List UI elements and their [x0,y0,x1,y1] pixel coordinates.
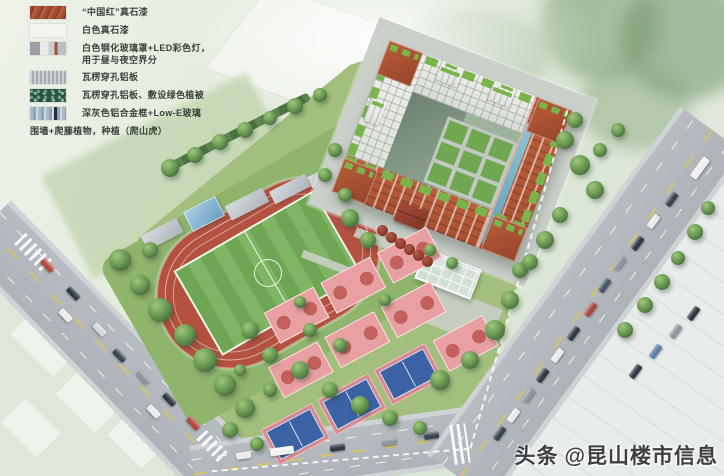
legend-swatch-glass-led-icon [30,42,66,55]
legend-item: 白色钢化玻璃罩+LED彩色灯， 用于昼与夜空界分 [30,42,250,66]
legend-item: 瓦楞穿孔铝板 [30,71,250,84]
tree [328,143,342,157]
tree [461,351,479,369]
tree [671,251,685,265]
tree [338,188,352,202]
legend-label-line2: 用于昼与夜空界分 [82,55,157,65]
tree [318,168,332,182]
tree [351,396,369,414]
tree [262,347,278,363]
tree [687,224,703,240]
legend-label: 围墙+爬藤植物，种植（爬山虎） [30,125,167,137]
tree [485,320,505,340]
tree [637,297,653,313]
legend-label: 瓦楞穿孔铝板、敷设绿色植被 [82,89,204,101]
tree [148,298,172,322]
legend-item: 瓦楞穿孔铝板、敷设绿色植被 [30,89,250,102]
watermark: 头条@昆山楼市信息 [515,440,718,470]
tree [222,422,238,438]
tree [430,370,450,390]
tree [341,209,359,227]
tree [193,348,217,372]
tree [187,147,203,163]
tree [322,382,338,398]
tree [617,322,633,338]
tree [291,361,309,379]
tree [586,181,604,199]
tree [536,231,554,249]
materials-legend: “中国红”真石漆 白色真石漆 白色钢化玻璃罩+LED彩色灯， 用于昼与夜空界分 … [30,6,250,142]
tree [234,364,246,376]
tree [446,257,458,269]
legend-swatch-china-red-icon [30,6,66,19]
tree [214,374,236,396]
legend-swatch-white-icon [30,24,66,37]
tree [501,291,519,309]
legend-swatch-aluminum-icon [30,71,66,84]
legend-item: 深灰色铝合金框+Low-E玻璃 [30,107,250,120]
tree [379,294,391,306]
tree [611,123,625,137]
tree [109,249,131,271]
tree [161,159,179,177]
tree [263,383,277,397]
tree [593,143,607,157]
legend-label: 白色钢化玻璃罩+LED彩色灯， 用于昼与夜空界分 [82,42,210,66]
tree [287,98,303,114]
tree [235,398,255,418]
legend-label: 瓦楞穿孔铝板 [82,71,138,83]
legend-swatch-lowe-glass-icon [30,107,66,120]
tree [294,296,306,308]
legend-label-line1: 白色钢化玻璃罩+LED彩色灯， [82,43,210,53]
tree [241,321,259,339]
tree [333,338,347,352]
tree [382,410,398,426]
legend-swatch-green-aluminum-icon [30,89,66,102]
tree [567,112,583,128]
tree [142,242,158,258]
tree [552,207,568,223]
tree [424,244,436,256]
basketball-court [381,281,447,338]
watermark-brand: 头条 [515,445,559,468]
tree [130,275,150,295]
legend-item: 围墙+爬藤植物，种植（爬山虎） [30,125,250,137]
legend-label: “中国红”真石漆 [82,6,148,18]
tree [174,324,196,346]
tree [313,88,327,102]
legend-label: 深灰色铝合金框+Low-E玻璃 [82,107,201,119]
tree [522,254,538,270]
watermark-handle: @昆山楼市信息 [565,445,718,468]
tree [250,437,264,451]
tree [570,155,590,175]
tree [360,232,376,248]
tennis-court-surface [379,348,438,400]
tree [556,131,574,149]
legend-item: 白色真石漆 [30,24,250,37]
legend-label: 白色真石漆 [82,24,129,36]
tree [654,274,670,290]
tree [263,111,277,125]
rendering-canvas: “中国红”真石漆 白色真石漆 白色钢化玻璃罩+LED彩色灯， 用于昼与夜空界分 … [0,0,724,476]
legend-item: “中国红”真石漆 [30,6,250,19]
tree [701,201,715,215]
red-foliage-tree [422,256,433,267]
tree [303,323,317,337]
